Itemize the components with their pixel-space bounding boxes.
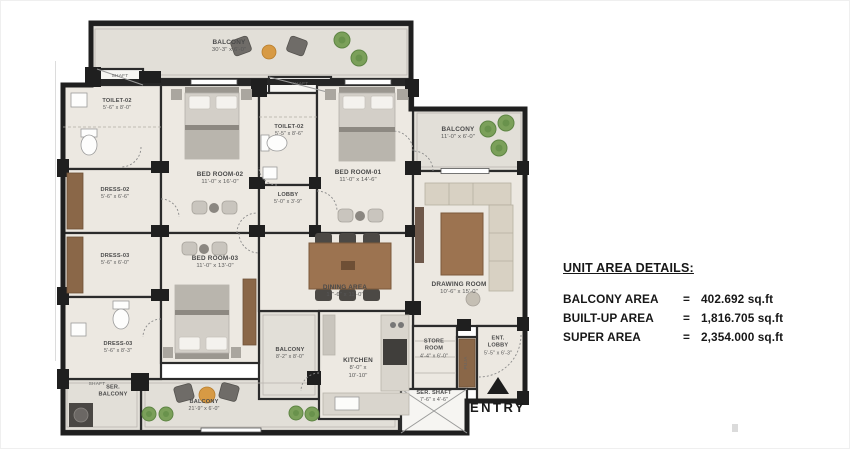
unit-area-details-title: UNIT AREA DETAILS: <box>563 261 783 275</box>
room-label-ser-shaft: SER. SHAFT7'-6" x 4'-6" <box>416 390 451 404</box>
room-label-balcony-right: BALCONY11'-0" x 6'-0" <box>441 126 475 142</box>
bed-icon <box>163 285 241 359</box>
room-label-shaft-top-left: SHAFT <box>112 74 129 80</box>
area-label: SUPER AREA <box>563 330 683 344</box>
area-row-super: SUPER AREA = 2,354.000 sq.ft <box>563 330 783 344</box>
room-label-drawing-room: DRAWING ROOM10'-6" x 15'-0" <box>432 281 487 297</box>
room-label-balcony-bottom: BALCONY21'-9" x 6'-0" <box>188 399 219 413</box>
room-label-ent-lobby: ENT.LOBBY5'-5" x 6'-3" <box>484 335 512 356</box>
equals-sign: = <box>683 330 701 344</box>
floor-plan-page: BALCONY30'-3" x 6'-0" SHAFT TOILET-025'-… <box>0 0 850 449</box>
room-label-store-room: STOREROOM4'-4" x 6'-0" <box>420 338 448 359</box>
area-value: 2,354.000 sq.ft <box>701 330 783 344</box>
room-label-bed-room-03: BED ROOM-0311'-0" x 13'-0" <box>192 255 239 271</box>
area-label: BALCONY AREA <box>563 292 683 306</box>
room-label-lobby: LOBBY5'-0" x 3'-9" <box>274 192 302 206</box>
floor-plan-drawing <box>1 1 850 449</box>
room-label-shaft-mid: SHAFT <box>292 82 309 88</box>
room-label-dining-area: DINING AREA17'-6" x 11'-0" <box>323 284 367 300</box>
area-label: BUILT-UP AREA <box>563 311 683 325</box>
unit-area-details: UNIT AREA DETAILS: BALCONY AREA = 402.69… <box>563 261 783 349</box>
room-label-toilet-02-mid: TOILET-025'-5" x 8'-6" <box>274 124 303 138</box>
room-label-bed-room-01: BED ROOM-0111'-0" x 14'-6" <box>335 169 382 185</box>
room-label-dress-03-b: DRESS-035'-6" x 8'-3" <box>104 341 133 355</box>
room-label-toilet-02-left: TOILET-025'-6" x 8'-0" <box>102 98 131 112</box>
room-label-balcony-top: BALCONY30'-3" x 6'-0" <box>212 39 246 55</box>
entry-label: ENTRY <box>470 400 526 415</box>
area-value: 1,816.705 sq.ft <box>701 311 783 325</box>
room-label-puja: PUJA <box>464 356 470 369</box>
scan-artifact-mark <box>732 424 738 432</box>
room-label-dress-03: DRESS-035'-6" x 6'-0" <box>101 253 130 267</box>
room-label-bed-room-02: BED ROOM-0211'-0" x 16'-0" <box>197 171 244 187</box>
room-label-kitchen: KITCHEN8'-0" x10'-10" <box>343 357 373 381</box>
wardrobe-icon <box>243 279 256 345</box>
entry-arrow-icon <box>487 377 509 394</box>
room-label-dress-02: DRESS-025'-6" x 6'-6" <box>101 187 130 201</box>
equals-sign: = <box>683 311 701 325</box>
area-value: 402.692 sq.ft <box>701 292 783 306</box>
equals-sign: = <box>683 292 701 306</box>
area-row-balcony: BALCONY AREA = 402.692 sq.ft <box>563 292 783 306</box>
room-label-balcony-kitchen: BALCONY8'-2" x 8'-0" <box>275 347 304 361</box>
area-row-built-up: BUILT-UP AREA = 1,816.705 sq.ft <box>563 311 783 325</box>
washing-machine-icon <box>69 403 93 427</box>
room-label-ser-balcony: SER.BALCONY <box>98 385 127 400</box>
